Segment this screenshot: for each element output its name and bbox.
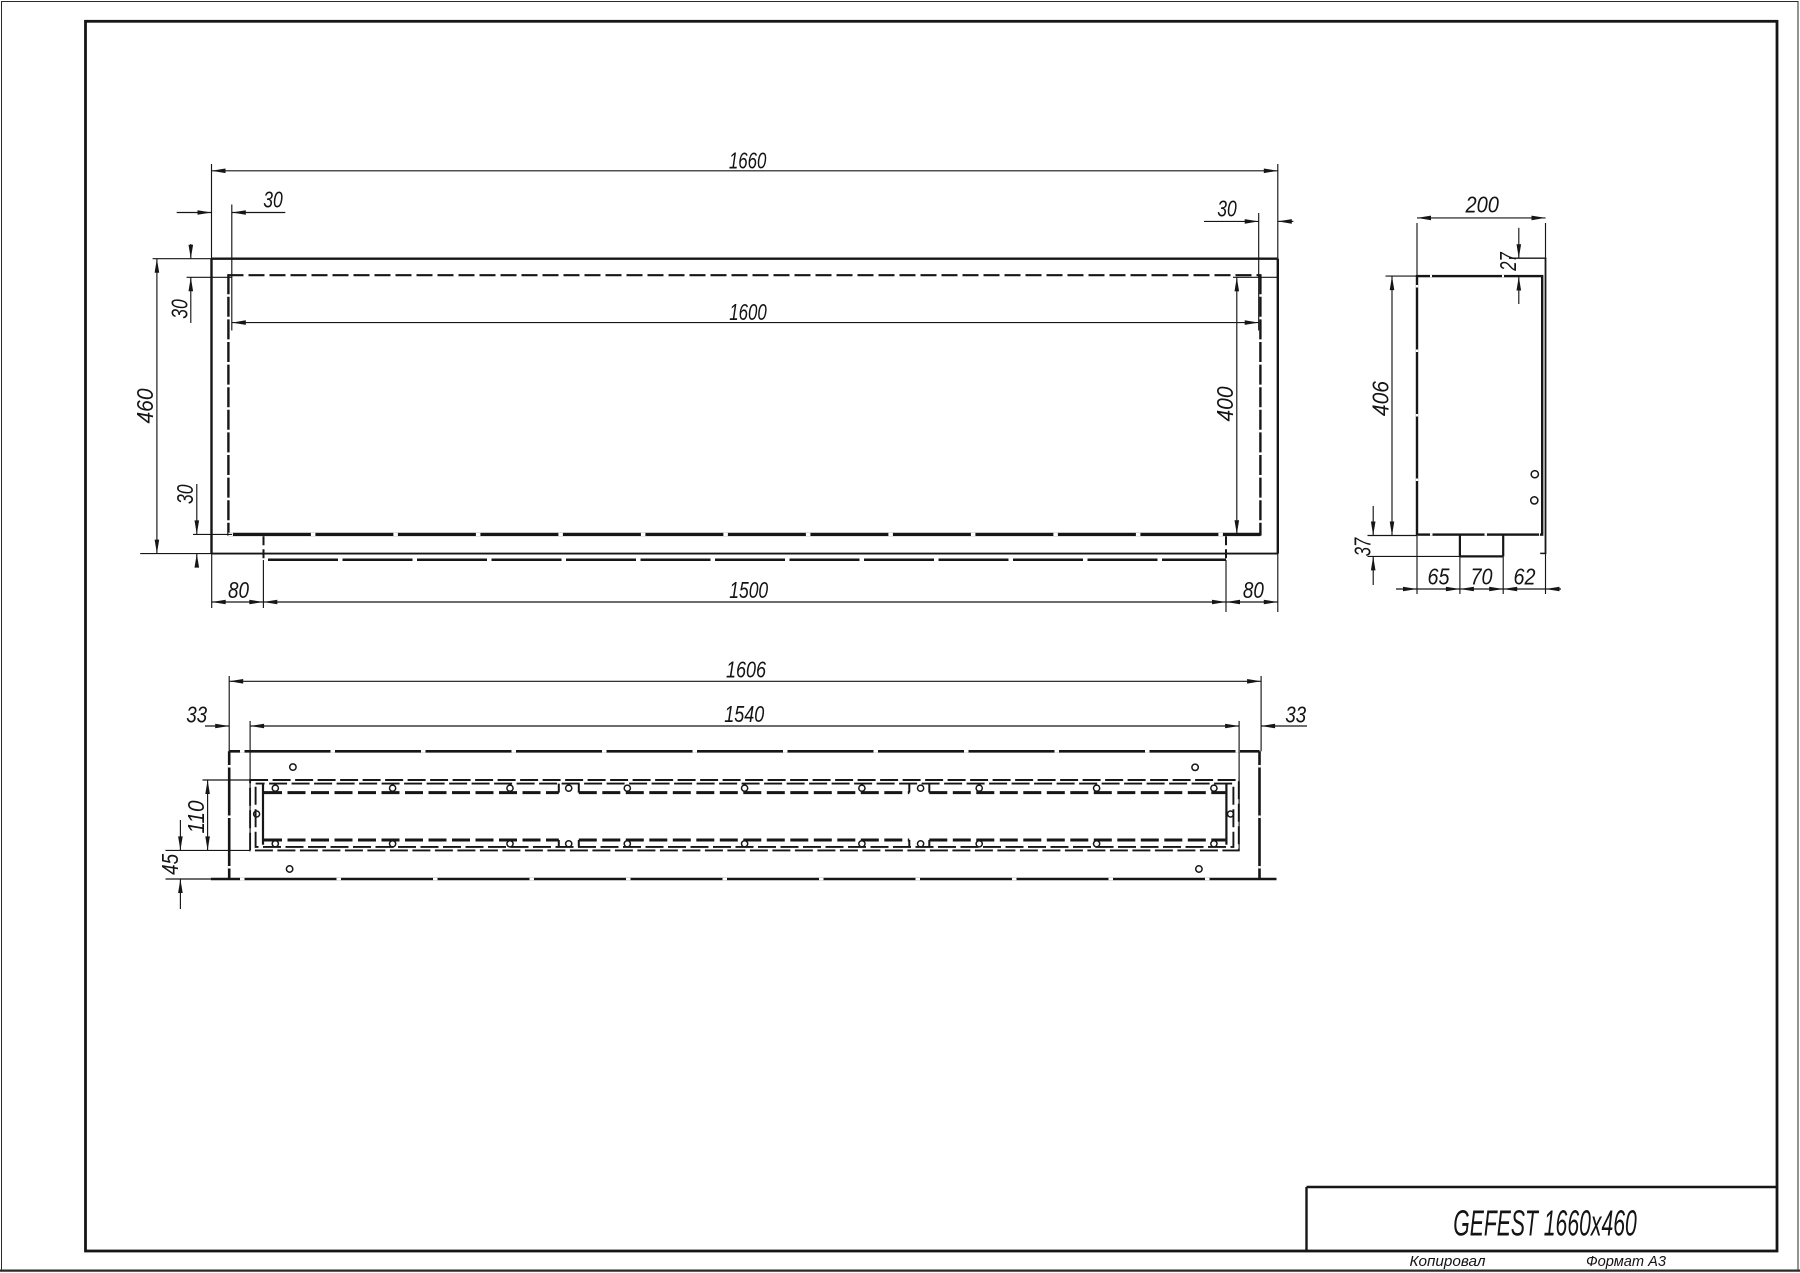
svg-text:62: 62 — [1514, 564, 1536, 590]
svg-text:30: 30 — [172, 484, 198, 504]
svg-text:33: 33 — [1285, 702, 1306, 728]
svg-text:80: 80 — [228, 577, 249, 603]
svg-text:1540: 1540 — [724, 701, 764, 727]
svg-text:30: 30 — [263, 186, 283, 212]
svg-text:1660: 1660 — [729, 147, 767, 173]
svg-text:Формат А3: Формат А3 — [1586, 1253, 1667, 1270]
svg-text:1600: 1600 — [729, 299, 767, 325]
svg-text:27: 27 — [1495, 251, 1521, 271]
svg-text:460: 460 — [132, 388, 158, 423]
svg-text:45: 45 — [157, 854, 183, 875]
svg-text:Копировал: Копировал — [1410, 1253, 1487, 1270]
svg-text:65: 65 — [1428, 564, 1450, 590]
svg-text:37: 37 — [1350, 537, 1376, 556]
svg-text:200: 200 — [1465, 192, 1500, 218]
svg-text:70: 70 — [1471, 564, 1493, 590]
svg-text:80: 80 — [1243, 577, 1264, 603]
svg-text:GEFEST 1660x460: GEFEST 1660x460 — [1453, 1203, 1637, 1244]
svg-text:1606: 1606 — [726, 657, 766, 683]
svg-text:30: 30 — [1217, 196, 1237, 222]
svg-text:400: 400 — [1212, 386, 1238, 421]
svg-text:110: 110 — [183, 800, 209, 833]
svg-text:30: 30 — [166, 299, 192, 319]
svg-text:33: 33 — [186, 702, 207, 728]
svg-text:406: 406 — [1368, 381, 1394, 416]
svg-text:1500: 1500 — [729, 577, 768, 603]
